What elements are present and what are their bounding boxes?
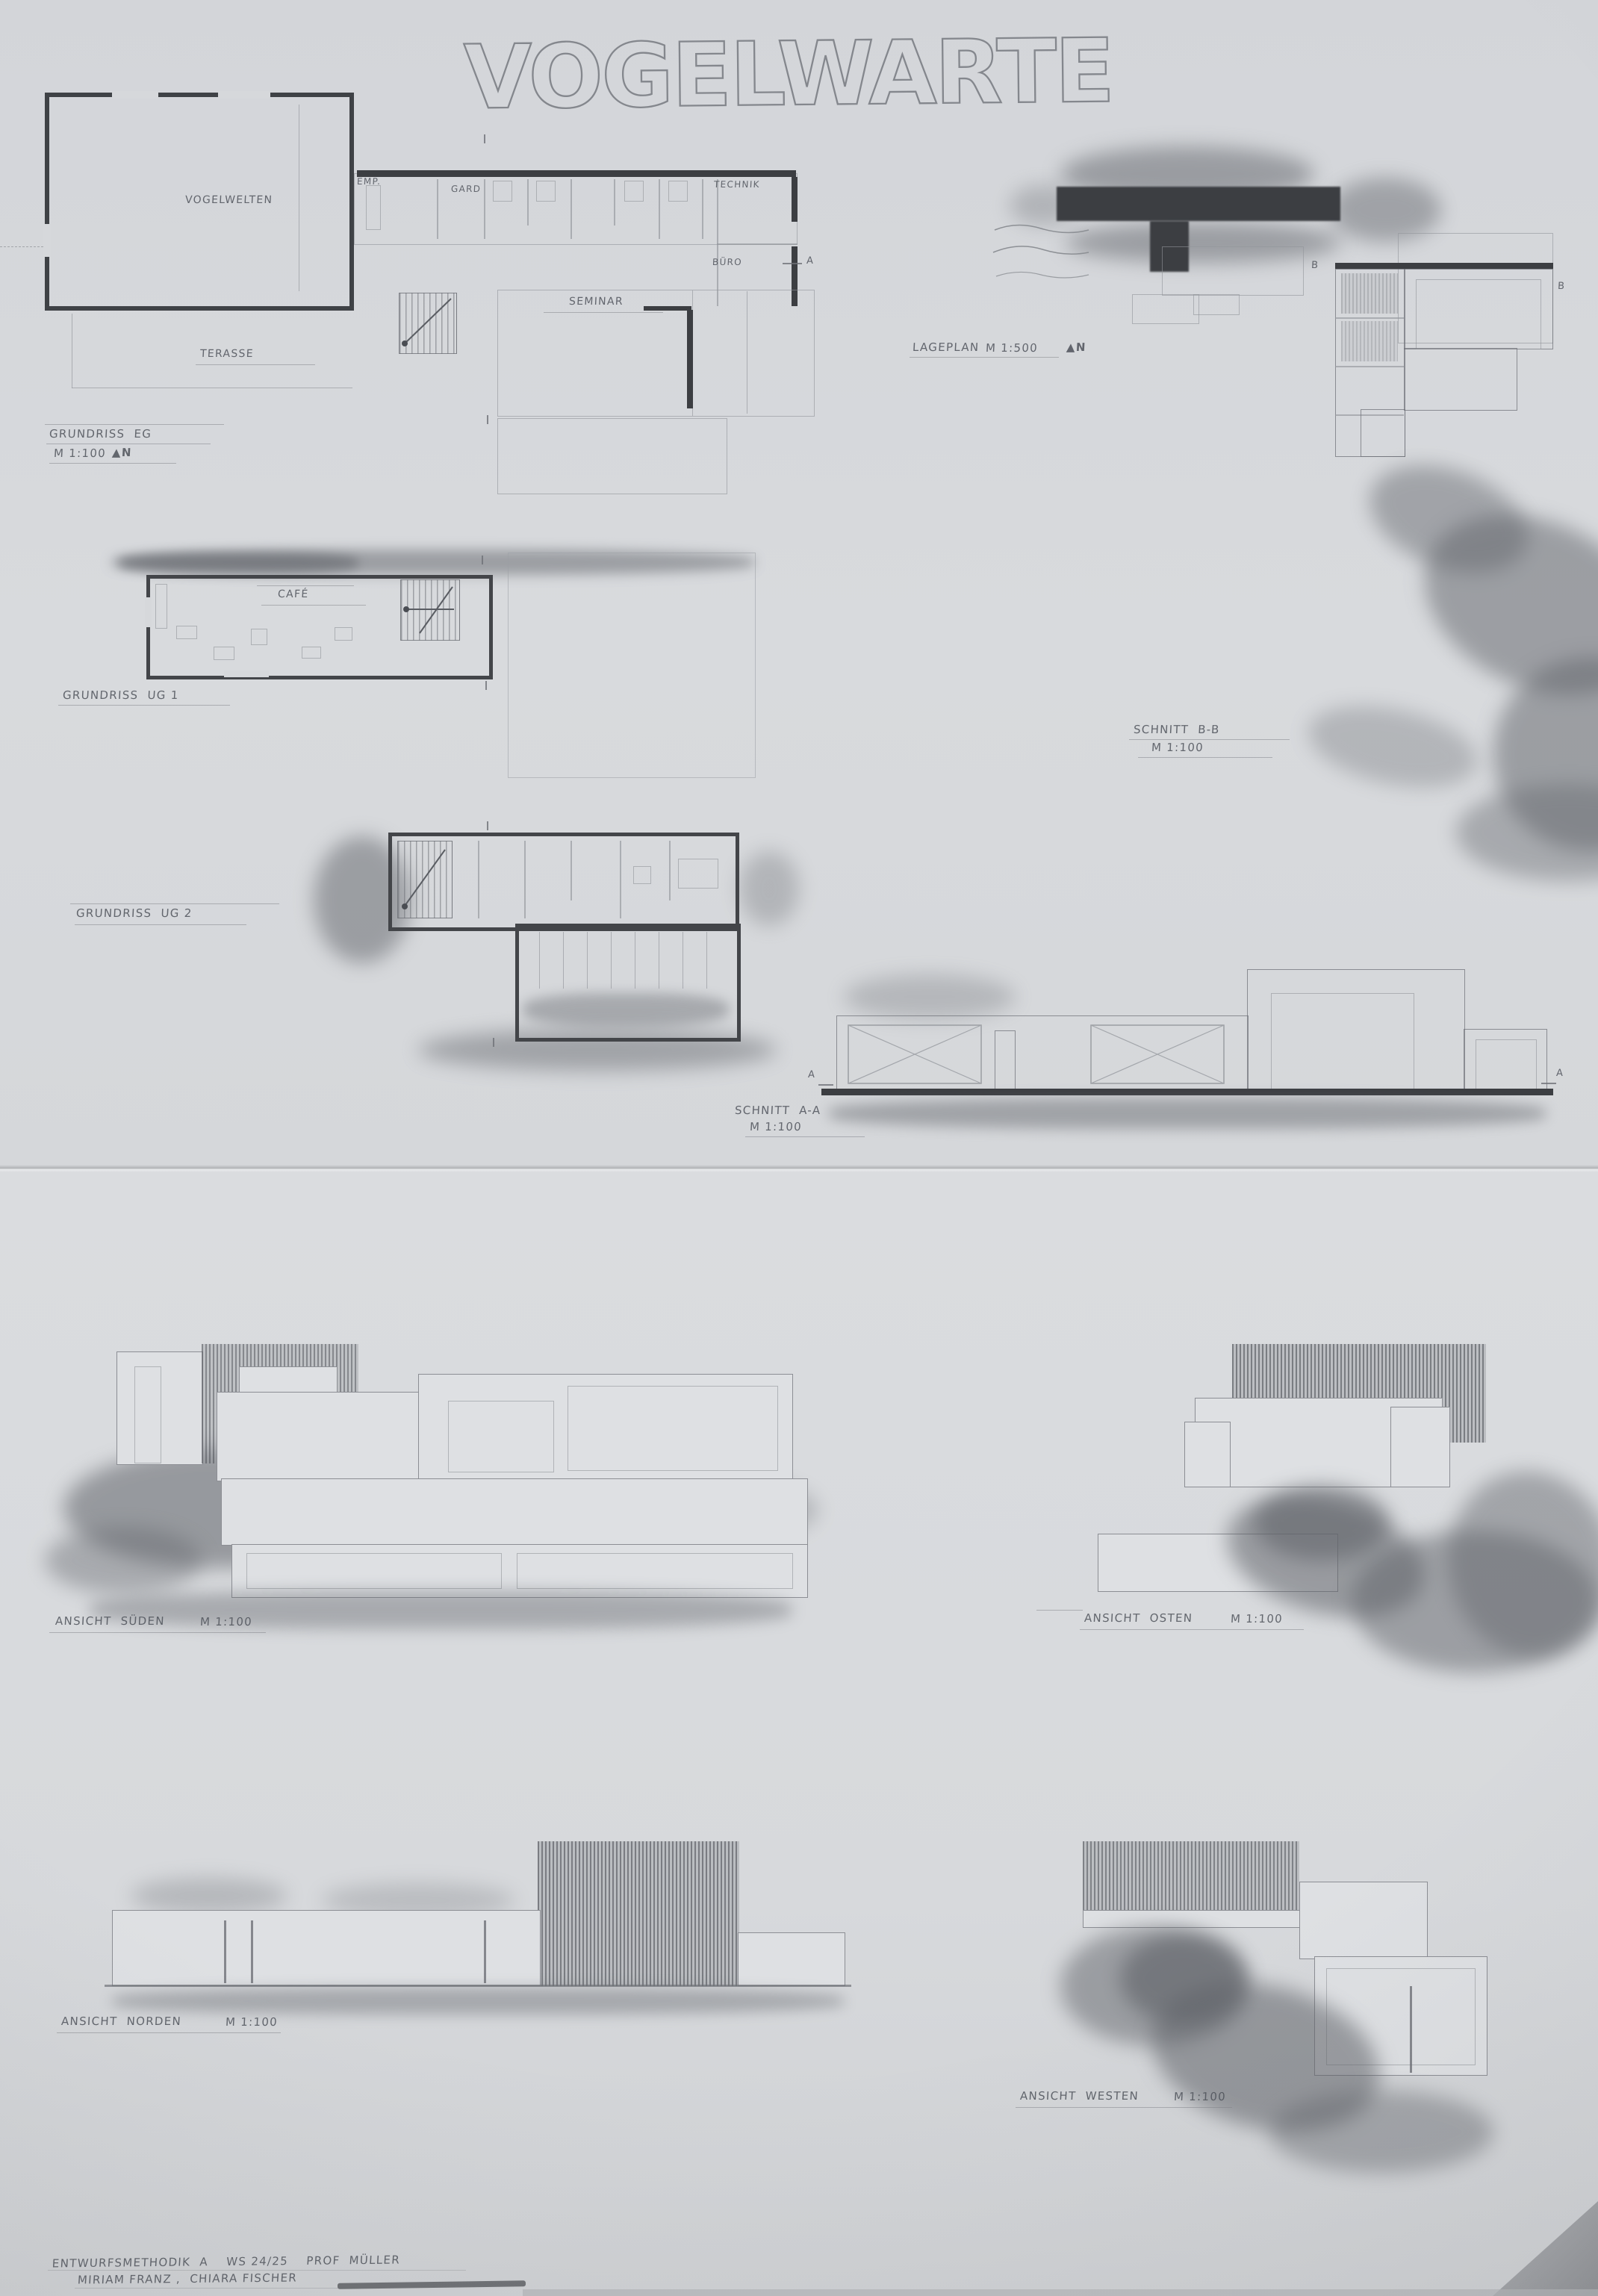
ug1-table: [214, 647, 234, 660]
eg-section-tick-a: [783, 263, 802, 264]
ug2-fixture: [678, 859, 718, 889]
paper-sheet-edge: [0, 1165, 1598, 1172]
north-arrow: ▲N: [1066, 340, 1087, 354]
ug2-section-tick: [493, 1038, 494, 1047]
bb-stair-hatch: [1341, 321, 1398, 361]
aa-braced-panel: [848, 1024, 982, 1084]
ug1-roof-shading-dark: [119, 553, 358, 573]
ug2-shadow: [739, 851, 799, 926]
eg-wc-fixture: [668, 181, 688, 202]
ug2-stall-partition: [563, 932, 564, 989]
eg-wall-opening: [43, 224, 51, 257]
sueden-ground-shadow: [90, 1590, 792, 1629]
drawing-label-schnitt-aa: SCHNITT A-A: [735, 1104, 821, 1117]
aa-ground-slab: [821, 1089, 1553, 1095]
room-label-seminar: SEMINAR: [569, 296, 624, 308]
pencil-rule: [75, 924, 246, 925]
norden-door-slit: [224, 1920, 226, 1983]
pencil-rule: [46, 444, 211, 444]
pencil-rule: [1129, 739, 1290, 740]
norden-shaded-block: [538, 1841, 739, 1986]
section-marker-b: B: [1311, 260, 1319, 271]
lageplan-building-outline: [1132, 294, 1199, 324]
ug2-partition: [571, 841, 572, 900]
sueden-door: [134, 1366, 161, 1463]
north-arrow: ▲N: [112, 446, 133, 459]
pencil-rule: [745, 1136, 865, 1137]
eg-wing-partition: [484, 179, 485, 239]
eg-east-room-line: [717, 179, 718, 306]
eg-wall-opening: [218, 91, 270, 99]
aa-tall-block-opening: [1271, 993, 1414, 1090]
ug1-table: [302, 647, 321, 659]
pencil-rule: [910, 357, 1059, 358]
pencil-rule: [58, 705, 230, 706]
eg-wall-opening: [112, 91, 158, 99]
eg-lower-roof-outline: [497, 418, 727, 494]
drawing-scale-schnitt-aa: M 1:100: [750, 1120, 803, 1133]
eg-section-tick-b-bottom: [487, 415, 488, 424]
bb-floor-line: [1335, 366, 1404, 367]
ug2-floor-shading: [523, 993, 729, 1026]
room-label-terasse: TERASSE: [200, 348, 255, 360]
ug2-stall-partition: [659, 932, 659, 989]
ug2-partition: [669, 841, 671, 900]
pencil-rule: [1036, 1610, 1083, 1611]
aa-section-tick: [1541, 1083, 1556, 1084]
sueden-volume-mid: [217, 1392, 420, 1481]
eg-counter: [366, 185, 381, 230]
ug1-table: [251, 629, 267, 645]
eg-wing-partition: [702, 179, 703, 239]
lageplan-contour-lines: [993, 217, 1090, 299]
ug2-stall-partition: [611, 932, 612, 989]
drawing-scale-lageplan: M 1:500: [986, 341, 1039, 355]
sueden-lower-glazing: [246, 1553, 502, 1589]
pencil-rule: [45, 424, 224, 425]
westen-upper-block: [1299, 1882, 1428, 1959]
ug1-upper-floor-ghost: [508, 553, 756, 778]
pencil-rule: [261, 605, 366, 606]
ug1-table: [176, 626, 197, 639]
norden-door-slit: [484, 1920, 486, 1983]
norden-door-slit: [251, 1920, 253, 1983]
ug1-table: [335, 627, 352, 641]
board-title-text: VOGELWARTE: [463, 19, 1121, 128]
norden-long-band: [112, 1910, 541, 1986]
osten-door-inset: [1390, 1407, 1450, 1487]
credits-line-2: MIRIAM FRANZ , CHIARA FISCHER: [77, 2271, 297, 2286]
eg-interior-line: [299, 105, 299, 291]
ug2-partition: [478, 841, 479, 918]
eg-approach-dashes: [0, 246, 43, 247]
eg-roof-line: [747, 291, 747, 414]
ug2-partition: [524, 841, 526, 918]
eg-wc-fixture: [624, 181, 644, 202]
drawing-label-grundriss-ug1: GRUNDRISS UG 1: [63, 688, 180, 702]
ug2-partition: [620, 841, 621, 918]
eg-wc-fixture: [493, 181, 512, 202]
eg-east-wall: [792, 177, 798, 222]
drawing-label-lageplan: LAGEPLAN: [913, 340, 980, 354]
aa-section-tick: [818, 1084, 833, 1086]
eg-roof-outline: [693, 290, 815, 417]
ug2-section-tick: [487, 821, 488, 830]
ug1-stairs-arrow: [400, 579, 458, 639]
pencil-rule: [1080, 1629, 1304, 1630]
lageplan-building-outline: [1162, 246, 1304, 296]
pencil-rule: [544, 312, 663, 313]
eg-wc-fixture: [536, 181, 556, 202]
board-title: VOGELWARTE: [459, 13, 1139, 133]
section-marker-a: A: [806, 255, 815, 267]
sueden-wide-window: [568, 1386, 778, 1471]
westen-door-slit: [1410, 1986, 1412, 2073]
ug1-wall-opening: [224, 671, 269, 677]
bb-main-room-glazing: [1416, 279, 1541, 349]
ug2-stairs-arrow: [397, 841, 451, 917]
eg-stairs-arrow: [399, 293, 456, 352]
drawing-label-ansicht-sueden: ANSICHT SÜDEN: [55, 1614, 166, 1628]
eg-seminar-east-wall: [687, 310, 693, 408]
ug2-stall-partition: [635, 932, 635, 989]
aa-braced-panel: [1090, 1024, 1225, 1084]
ug2-stall-partition: [587, 932, 588, 989]
sueden-wide-window: [448, 1401, 554, 1472]
ug2-stall-partition: [683, 932, 683, 989]
osten-step-volume: [1184, 1422, 1231, 1487]
pencil-rule: [1138, 757, 1272, 758]
pencil-rule: [49, 463, 176, 464]
room-label-buero: BÜRO: [712, 257, 743, 267]
drawing-label-ansicht-norden: ANSICHT NORDEN: [61, 2015, 182, 2028]
ug2-stall-partition: [706, 932, 707, 989]
ug2-fixture: [633, 866, 651, 884]
room-label-cafe: CAFÉ: [278, 588, 309, 600]
norden-smudge: [131, 1878, 287, 1914]
bb-lower-room: [1404, 348, 1517, 411]
drawing-label-grundriss-ug2: GRUNDRISS UG 2: [76, 906, 193, 920]
ug1-wall-opening: [145, 597, 152, 627]
aa-ground-shadow: [829, 1098, 1546, 1129]
eg-section-tick-b-top: [484, 134, 485, 143]
drawing-scale-ansicht-norden: M 1:100: [226, 2015, 279, 2029]
pencil-rule: [1016, 2107, 1232, 2108]
pencil-rule: [49, 1632, 266, 1633]
bb-basement-step: [1361, 409, 1405, 457]
sueden-slab-band: [221, 1478, 808, 1546]
norden-ground-line: [105, 1985, 851, 1987]
section-marker-a: A: [1556, 1068, 1564, 1079]
pencil-rule: [70, 903, 279, 904]
lageplan-roof-bar: [1057, 187, 1340, 221]
norden-ground-shadow: [112, 1988, 844, 2015]
eg-east-room-line: [717, 243, 798, 245]
section-marker-a: A: [808, 1069, 816, 1080]
westen-hill-wash: [1120, 1934, 1247, 2023]
pencil-rule: [48, 2270, 466, 2271]
eg-wing-partition: [659, 179, 660, 239]
pencil-rule: [257, 585, 354, 586]
lageplan-building-outline: [1193, 294, 1240, 315]
drawing-label-ansicht-osten: ANSICHT OSTEN: [1084, 1611, 1193, 1625]
ug1-section-tick: [482, 556, 483, 564]
presentation-board-photo: VOGELWARTE: [0, 0, 1598, 2296]
eg-wing-partition: [571, 179, 572, 239]
sueden-lower-glazing: [517, 1553, 793, 1589]
sueden-tree-wash: [45, 1527, 202, 1594]
drawing-label-schnitt-bb: SCHNITT B-B: [1134, 723, 1221, 736]
eg-terrace-edge: [72, 388, 352, 388]
drawing-scale-schnitt-bb: M 1:100: [1151, 741, 1204, 754]
aa-center-post: [995, 1030, 1016, 1090]
pencil-rule: [196, 364, 315, 365]
bb-stair-hatch: [1341, 273, 1398, 314]
table-edge-strip: [523, 2289, 1598, 2296]
drawing-scale-grundriss-eg: M 1:100: [54, 447, 107, 460]
room-label-vogelwelten: VOGELWELTEN: [185, 194, 273, 206]
norden-long-band-right: [738, 1932, 845, 1986]
drawing-label-grundriss-eg: GRUNDRISS EG: [49, 427, 152, 441]
eg-wing-partition: [437, 179, 438, 239]
room-label-technik: TECHNIK: [714, 179, 761, 190]
bb-floor-line: [1335, 317, 1404, 319]
osten-hill-wash: [1255, 1486, 1389, 1561]
bb-roof-line: [1335, 263, 1553, 269]
eg-terrace-edge: [72, 314, 72, 388]
drawing-scale-ansicht-westen: M 1:100: [1174, 2090, 1227, 2103]
aa-right-room-glazing: [1476, 1039, 1537, 1090]
eg-wing-partition: [614, 179, 615, 225]
westen-thin-band: [1083, 1910, 1301, 1928]
drawing-label-ansicht-westen: ANSICHT WESTEN: [1020, 2089, 1140, 2103]
aa-background-smudge: [844, 974, 1016, 1019]
room-label-garderobe: GARD: [451, 184, 482, 194]
eg-wing-partition: [527, 179, 529, 225]
eg-seminar-corner-wall: [644, 306, 691, 311]
pencil-rule: [57, 2032, 281, 2033]
section-marker-b: B: [1558, 281, 1566, 292]
ug1-section-tick: [485, 681, 487, 690]
room-label-empfang: EMP.: [357, 176, 382, 187]
westen-hill-wash: [1269, 2091, 1493, 2173]
drawing-scale-ansicht-sueden: M 1:100: [200, 1615, 253, 1628]
ug2-stall-partition: [539, 932, 540, 989]
eg-wing-north-wall: [357, 170, 796, 177]
westen-shaded-band: [1083, 1841, 1299, 1910]
pencil-rule: [75, 2288, 358, 2289]
ug1-counter: [155, 584, 167, 629]
drawing-scale-ansicht-osten: M 1:100: [1231, 1612, 1284, 1625]
